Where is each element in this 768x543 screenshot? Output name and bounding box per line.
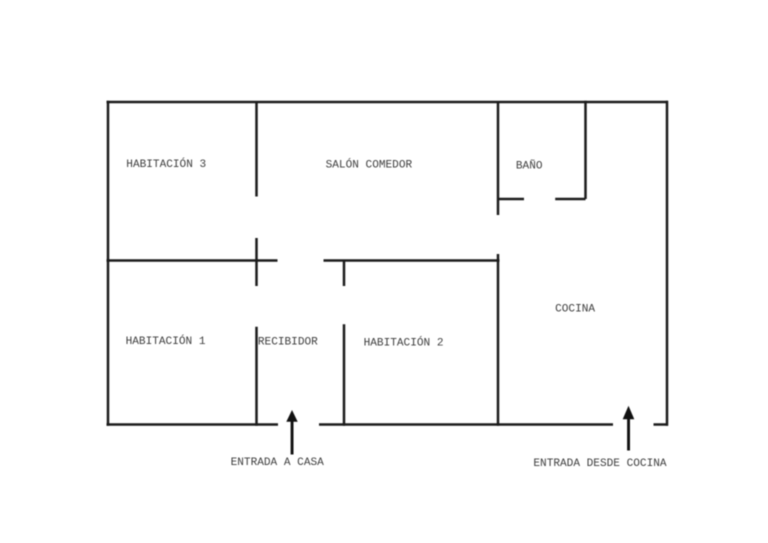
svg-text:ENTRADA A CASA: ENTRADA A CASA — [231, 457, 325, 469]
svg-text:ENTRADA DESDE COCINA: ENTRADA DESDE COCINA — [533, 458, 666, 470]
svg-text:RECIBIDOR: RECIBIDOR — [258, 337, 318, 349]
svg-text:HABITACIÓN 2: HABITACIÓN 2 — [364, 335, 444, 349]
svg-text:HABITACIÓN 1: HABITACIÓN 1 — [126, 334, 206, 348]
svg-text:HABITACIÓN 3: HABITACIÓN 3 — [126, 157, 206, 171]
svg-text:COCINA: COCINA — [555, 304, 595, 316]
svg-text:BAÑO: BAÑO — [516, 160, 543, 173]
svg-text:SALÓN COMEDOR: SALÓN COMEDOR — [326, 158, 413, 172]
